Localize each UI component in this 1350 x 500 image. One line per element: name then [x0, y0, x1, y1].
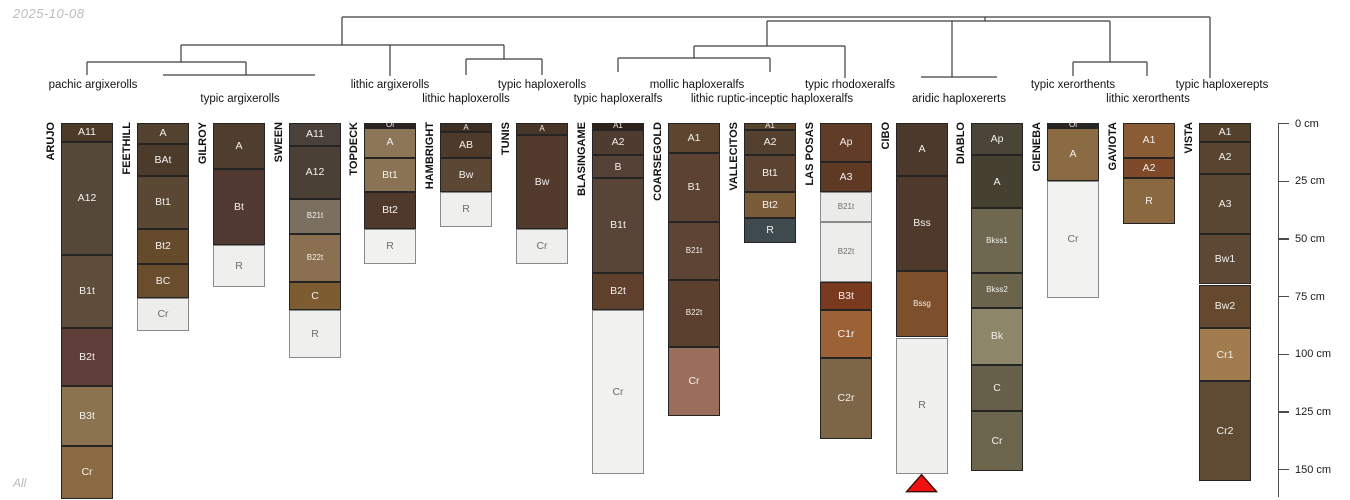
horizon-hambright-r: R	[440, 192, 492, 227]
horizon-gilroy-bt: Bt	[213, 169, 265, 245]
depth-axis-tick	[1278, 354, 1289, 355]
horizon-feethill-bt2: Bt2	[137, 229, 189, 264]
horizon-label: B3t	[838, 291, 854, 302]
horizon-arujo-a12: A12	[61, 142, 113, 255]
horizon-coarsegold-b21t: B21t	[668, 222, 720, 280]
horizon-label: Bt2	[155, 241, 171, 252]
horizon-label: Bss	[913, 218, 931, 229]
horizon-tunis-bw: Bw	[516, 135, 568, 230]
horizon-sween-c: C	[289, 282, 341, 310]
depth-axis-tick	[1278, 181, 1289, 182]
horizon-vallecitos-bt2: Bt2	[744, 192, 796, 217]
horizon-las-posas-b22t: B22t	[820, 222, 872, 282]
horizon-vista-cr2: Cr2	[1199, 381, 1251, 480]
horizon-topdeck-bt2: Bt2	[364, 192, 416, 229]
profile-id-label: VALLECITOS	[728, 122, 740, 191]
horizon-diablo-bk: Bk	[971, 308, 1023, 366]
depth-axis-tick-label: 25 cm	[1295, 175, 1325, 187]
horizon-label: AB	[459, 140, 473, 151]
profile-id-label: COARSEGOLD	[652, 122, 664, 201]
horizon-cibo-a: A	[896, 123, 948, 176]
taxon-label: lithic argixerolls	[351, 79, 430, 91]
horizon-vallecitos-a2: A2	[744, 130, 796, 155]
horizon-label: A12	[306, 167, 325, 178]
horizon-gilroy-a: A	[213, 123, 265, 169]
horizon-feethill-bat: BAt	[137, 144, 189, 176]
horizon-label: B2t	[610, 286, 626, 297]
horizon-label: A1	[1143, 135, 1156, 146]
horizon-sween-a12: A12	[289, 146, 341, 199]
horizon-hambright-a: A	[440, 123, 492, 132]
horizon-diablo-bkss2: Bkss2	[971, 273, 1023, 308]
horizon-vallecitos-r: R	[744, 218, 796, 243]
horizon-topdeck-a: A	[364, 128, 416, 158]
horizon-sween-r: R	[289, 310, 341, 358]
horizon-label: Bt2	[762, 200, 778, 211]
horizon-label: A	[993, 177, 1000, 188]
horizon-label: C1r	[838, 329, 855, 340]
horizon-label: Ap	[991, 134, 1004, 145]
taxon-label: mollic haploxeralfs	[650, 79, 745, 91]
profile-id-label: HAMBRIGHT	[424, 122, 436, 189]
profile-id-label: BLASINGAME	[576, 122, 588, 196]
horizon-cieneba-cr: Cr	[1047, 181, 1099, 299]
horizon-cibo-bss: Bss	[896, 176, 948, 271]
depth-axis-line	[1278, 123, 1279, 497]
horizon-vista-a3: A3	[1199, 174, 1251, 234]
horizon-blasingame-a1: A1	[592, 123, 644, 130]
horizon-label: BAt	[155, 155, 172, 166]
taxon-label: typic rhodoxeralfs	[805, 79, 895, 91]
horizon-label: B3t	[79, 411, 95, 422]
depth-axis-tick	[1278, 469, 1289, 470]
horizon-hambright-bw: Bw	[440, 158, 492, 193]
horizon-label: B1	[688, 182, 701, 193]
horizon-label: Cr	[157, 309, 168, 320]
horizon-sween-b22t: B22t	[289, 234, 341, 282]
horizon-label: A	[918, 144, 925, 155]
horizon-label: Bw	[459, 170, 474, 181]
horizon-label: B21t	[838, 203, 854, 211]
horizon-cieneba-a: A	[1047, 128, 1099, 181]
horizon-label: Cr	[81, 467, 92, 478]
horizon-las-posas-b21t: B21t	[820, 192, 872, 222]
profile-id-label: LAS POSAS	[804, 122, 816, 186]
profile-id-label: FEETHILL	[121, 122, 133, 175]
horizon-tunis-a: A	[516, 123, 568, 135]
horizon-label: Ap	[840, 137, 853, 148]
profile-id-label: TUNIS	[500, 122, 512, 155]
horizon-coarsegold-cr: Cr	[668, 347, 720, 416]
horizon-label: Cr2	[1217, 426, 1234, 437]
horizon-las-posas-a3: A3	[820, 162, 872, 192]
horizon-feethill-bt1: Bt1	[137, 176, 189, 229]
horizon-label: A	[463, 124, 468, 132]
horizon-label: A3	[1219, 199, 1232, 210]
horizon-blasingame-b: B	[592, 155, 644, 178]
profile-id-label: CIENEBA	[1031, 122, 1043, 172]
horizon-label: B1t	[79, 286, 95, 297]
horizon-label: Bkss2	[986, 286, 1008, 294]
horizon-diablo-bkss1: Bkss1	[971, 208, 1023, 273]
horizon-label: Cr1	[1217, 350, 1234, 361]
depth-axis-tick	[1278, 123, 1289, 124]
horizon-label: Bt1	[382, 170, 398, 181]
taxon-label: lithic ruptic-inceptic haploxeralfs	[691, 93, 853, 105]
taxon-label: lithic xerorthents	[1106, 93, 1190, 105]
horizon-label: B22t	[686, 309, 702, 317]
horizon-label: Cr	[1067, 234, 1078, 245]
horizon-vallecitos-a1: A1	[744, 123, 796, 130]
profile-id-label: CIBO	[880, 122, 892, 150]
depth-axis-tick-label: 150 cm	[1295, 464, 1331, 476]
horizon-label: A2	[1219, 152, 1232, 163]
horizon-label: C	[311, 291, 319, 302]
horizon-label: A3	[840, 172, 853, 183]
horizon-diablo-cr: Cr	[971, 411, 1023, 471]
profile-id-label: ARUJO	[45, 122, 57, 161]
horizon-label: Cr	[688, 376, 699, 387]
horizon-vallecitos-bt1: Bt1	[744, 155, 796, 192]
horizon-arujo-b2t: B2t	[61, 328, 113, 386]
horizon-blasingame-a2: A2	[592, 130, 644, 155]
depth-axis-tick-label: 75 cm	[1295, 291, 1325, 303]
horizon-label: C	[993, 383, 1001, 394]
horizon-label: A	[235, 141, 242, 152]
horizon-label: A12	[78, 193, 97, 204]
depth-axis-tick	[1278, 296, 1289, 297]
horizon-label: A11	[78, 127, 96, 138]
taxon-label: aridic haploxererts	[912, 93, 1006, 105]
horizon-label: Bt2	[382, 205, 398, 216]
horizon-label: A2	[1143, 163, 1156, 174]
horizon-label: A11	[306, 129, 324, 140]
horizon-tunis-cr: Cr	[516, 229, 568, 264]
horizon-feethill-bc: BC	[137, 264, 189, 299]
horizon-label: Cr	[536, 241, 547, 252]
horizon-hambright-ab: AB	[440, 132, 492, 157]
horizon-label: B21t	[686, 247, 702, 255]
taxon-label: typic haploxeralfs	[574, 93, 663, 105]
horizon-cibo-r: R	[896, 338, 948, 474]
depth-axis-tick	[1278, 238, 1289, 239]
horizon-label: B	[614, 162, 621, 173]
horizon-label: Bssg	[913, 300, 931, 308]
depth-axis-tick-label: 0 cm	[1295, 118, 1319, 130]
taxon-label: typic haploxerolls	[498, 79, 586, 91]
horizon-las-posas-c2r: C2r	[820, 358, 872, 439]
depth-axis-tick-label: 125 cm	[1295, 406, 1331, 418]
depth-axis-tick-label: 100 cm	[1295, 348, 1331, 360]
horizon-label: Bw1	[1215, 254, 1235, 265]
horizon-label: Bt1	[155, 197, 171, 208]
horizon-topdeck-bt1: Bt1	[364, 158, 416, 193]
profile-id-label: VISTA	[1183, 122, 1195, 154]
horizon-label: B1t	[610, 220, 626, 231]
horizon-label: B22t	[838, 248, 854, 256]
horizon-label: Bt1	[762, 168, 778, 179]
horizon-blasingame-cr: Cr	[592, 310, 644, 474]
horizon-label: Cr	[612, 387, 623, 398]
horizon-vista-cr1: Cr1	[1199, 328, 1251, 381]
horizon-gaviota-r: R	[1123, 178, 1175, 224]
horizon-label: R	[1145, 196, 1153, 207]
horizon-feethill-a: A	[137, 123, 189, 144]
taxon-label: typic haploxerepts	[1176, 79, 1269, 91]
horizon-gaviota-a1: A1	[1123, 123, 1175, 158]
horizon-coarsegold-b22t: B22t	[668, 280, 720, 347]
horizon-label: R	[766, 225, 774, 236]
profile-id-label: SWEEN	[273, 122, 285, 162]
horizon-label: BC	[156, 276, 171, 287]
horizon-arujo-b1t: B1t	[61, 255, 113, 329]
horizon-label: Bk	[991, 331, 1003, 342]
horizon-label: Cr	[991, 436, 1002, 447]
horizon-label: A2	[764, 137, 777, 148]
horizon-label: Bw2	[1215, 301, 1235, 312]
horizon-vista-bw1: Bw1	[1199, 234, 1251, 285]
horizon-label: Bkss1	[986, 237, 1008, 245]
soil-profile-plot: 2025-10-08 All pachic argixerollstypic a…	[0, 0, 1350, 500]
horizon-las-posas-ap: Ap	[820, 123, 872, 162]
horizon-diablo-a: A	[971, 155, 1023, 208]
taxon-label: typic argixerolls	[200, 93, 279, 105]
horizon-sween-a11: A11	[289, 123, 341, 146]
horizon-gilroy-r: R	[213, 245, 265, 287]
horizon-arujo-cr: Cr	[61, 446, 113, 499]
horizon-label: R	[462, 204, 470, 215]
horizon-label: R	[918, 400, 926, 411]
horizon-label: A	[386, 137, 393, 148]
horizon-arujo-a11: A11	[61, 123, 113, 142]
horizon-topdeck-r: R	[364, 229, 416, 264]
horizon-label: R	[311, 329, 319, 340]
horizon-label: A	[159, 128, 166, 139]
horizon-label: C2r	[838, 393, 855, 404]
profile-id-label: TOPDECK	[348, 122, 360, 176]
taxon-label: pachic argixerolls	[49, 79, 138, 91]
profile-id-label: DIABLO	[955, 122, 967, 164]
horizon-label: Bw	[535, 177, 550, 188]
horizon-gaviota-a2: A2	[1123, 158, 1175, 179]
horizon-sween-b21t: B21t	[289, 199, 341, 234]
horizon-feethill-cr: Cr	[137, 298, 189, 330]
profile-id-label: GILROY	[197, 122, 209, 164]
horizon-arujo-b3t: B3t	[61, 386, 113, 446]
taxon-label: lithic haploxerolls	[422, 93, 510, 105]
horizon-label: A	[1069, 149, 1076, 160]
horizon-las-posas-c1r: C1r	[820, 310, 872, 358]
horizon-label: A1	[688, 133, 701, 144]
horizon-label: A1	[1219, 127, 1232, 138]
depth-axis-tick-label: 50 cm	[1295, 233, 1325, 245]
horizon-vista-a1: A1	[1199, 123, 1251, 142]
horizon-las-posas-b3t: B3t	[820, 282, 872, 310]
taxon-label: typic xerorthents	[1031, 79, 1115, 91]
horizon-coarsegold-a1: A1	[668, 123, 720, 153]
horizon-blasingame-b1t: B1t	[592, 178, 644, 273]
horizon-label: R	[386, 241, 394, 252]
horizon-vista-bw2: Bw2	[1199, 285, 1251, 329]
profile-id-label: GAVIOTA	[1107, 122, 1119, 170]
horizon-vista-a2: A2	[1199, 142, 1251, 174]
horizon-cibo-bssg: Bssg	[896, 271, 948, 338]
horizon-label: B21t	[307, 212, 323, 220]
horizon-label: R	[235, 261, 243, 272]
horizon-label: B22t	[307, 254, 323, 262]
horizon-label: A2	[612, 137, 625, 148]
horizon-coarsegold-b1: B1	[668, 153, 720, 222]
horizon-diablo-ap: Ap	[971, 123, 1023, 155]
horizon-blasingame-b2t: B2t	[592, 273, 644, 310]
horizon-label: B2t	[79, 352, 95, 363]
horizon-diablo-c: C	[971, 365, 1023, 411]
depth-axis-tick	[1278, 411, 1289, 412]
horizon-label: Bt	[234, 202, 244, 213]
horizon-label: A	[539, 125, 544, 133]
